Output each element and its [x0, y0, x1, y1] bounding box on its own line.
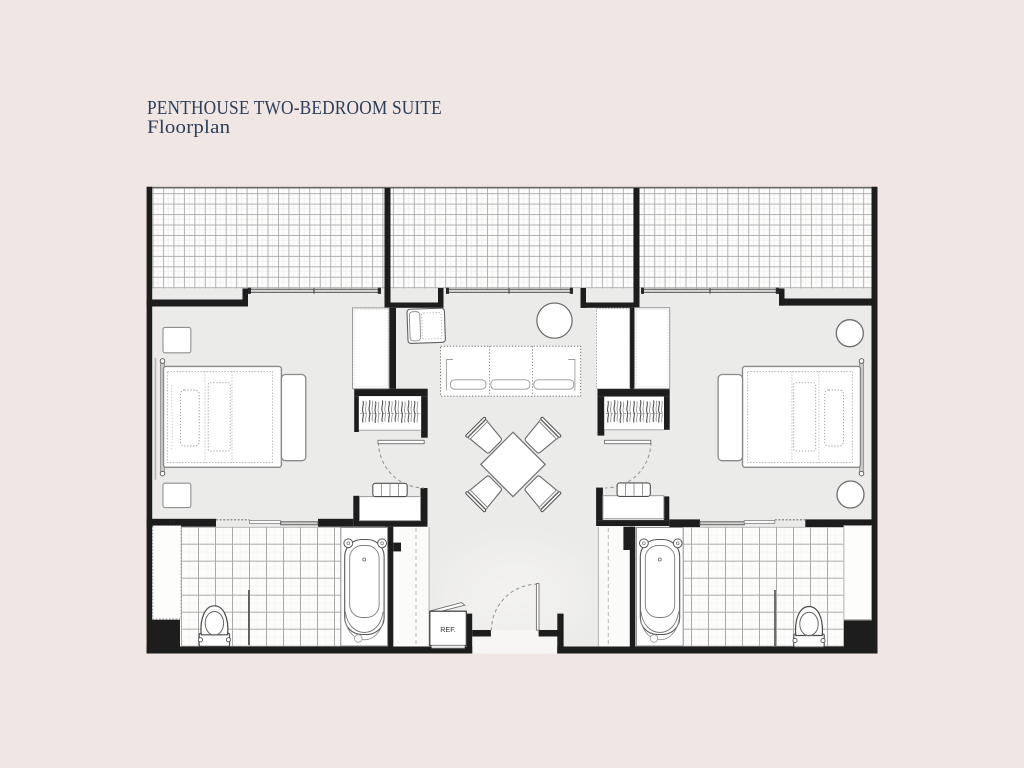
svg-text:REF.: REF. — [440, 625, 456, 634]
